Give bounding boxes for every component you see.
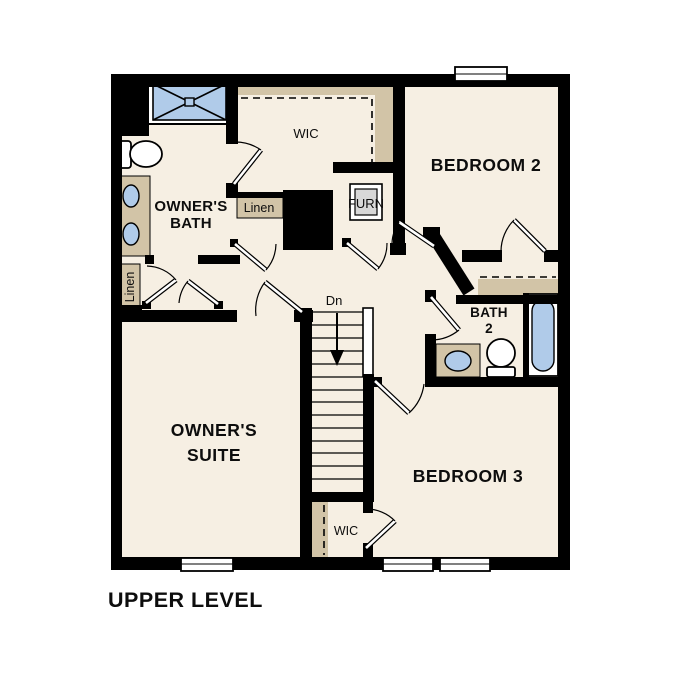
floor-plan: OWNER'S BATH WIC Linen FURN BEDROOM 2 BA… — [0, 0, 687, 687]
owners-suite-label-line1: OWNER'S — [171, 420, 257, 440]
stair-railing — [363, 308, 373, 376]
owners-bath-sink-2 — [123, 223, 139, 245]
bath2-toilet — [487, 339, 515, 377]
wic-lower-label: WIC — [334, 524, 358, 538]
owners-bath-toilet — [116, 141, 162, 168]
wall-outer-right — [558, 74, 570, 570]
owners-bath-sink-1 — [123, 185, 139, 207]
owners-suite-label-line2: SUITE — [187, 445, 241, 465]
bedroom2-closet-shelf — [478, 277, 558, 295]
shower-drain — [185, 98, 194, 106]
window-owners-suite — [181, 558, 233, 571]
window-bedroom2 — [455, 67, 507, 81]
page-title: UPPER LEVEL — [108, 588, 263, 612]
linen-side-label: Linen — [123, 272, 137, 303]
wic-upper-label: WIC — [293, 126, 318, 141]
bath2-sink — [445, 351, 471, 371]
owners-bath-label-line1: OWNER'S — [154, 198, 227, 215]
wall-outer-bottom — [111, 557, 570, 570]
owners-bath-label-line2: BATH — [170, 215, 212, 232]
floor-plan-page: OWNER'S BATH WIC Linen FURN BEDROOM 2 BA… — [0, 0, 687, 687]
bedroom3-label: BEDROOM 3 — [413, 466, 523, 486]
linen-upper-label: Linen — [244, 201, 275, 215]
window-bedroom3-right — [440, 558, 490, 571]
bath2-label-line1: BATH — [470, 305, 508, 320]
bedroom2-label: BEDROOM 2 — [431, 155, 541, 175]
bath2-label-line2: 2 — [485, 321, 493, 336]
wic-lower-shelf — [312, 502, 328, 557]
bath2-tub — [527, 294, 558, 376]
window-bedroom3-left — [383, 558, 433, 571]
stairs-down-label: Dn — [326, 293, 343, 308]
furnace-label: FURN — [348, 196, 384, 211]
